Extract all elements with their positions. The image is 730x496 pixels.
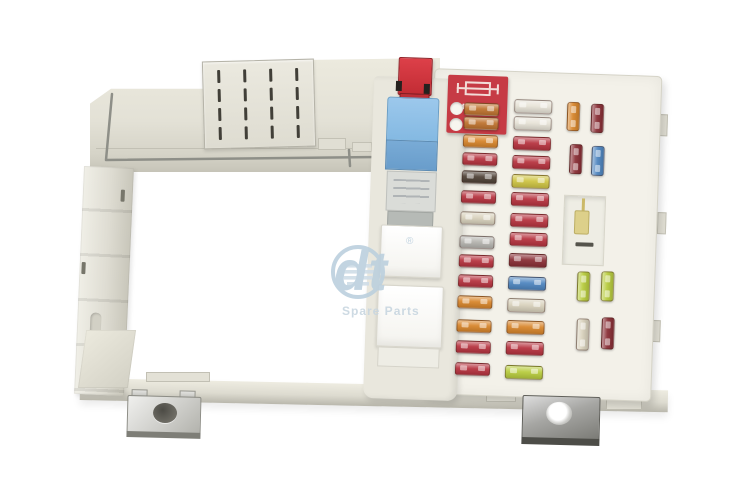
watermark-subtitle: Spare Parts [342,304,420,318]
fuse-red [512,155,550,170]
fuse-red [510,213,548,228]
fuse-red [462,152,497,166]
fuse-brown [462,170,497,184]
fuse-amber [463,116,498,130]
fuse-tan [507,298,545,313]
fuse-blue [591,146,605,176]
mount-bracket-left [126,389,205,441]
fuse-red [506,341,544,356]
fuse-red [509,232,547,247]
fuse-maroon [509,253,547,268]
fuse-red [456,340,491,354]
fuse-amber [464,102,499,116]
bracket-base [126,431,200,439]
fuse-white [514,99,552,114]
fuse-red [513,136,551,151]
fuse-maroon [569,144,583,174]
fuse-tan [576,318,590,350]
fuse-yellowgreen [576,271,590,301]
fuse-orange [457,295,492,309]
fuse-orange [463,134,498,148]
dt-logo-watermark: dt ® Spare Parts [316,212,436,328]
fuse-yellow [511,174,549,189]
fuse-red [459,254,494,268]
fuse-blue [508,276,546,291]
registered-mark: ® [406,236,414,247]
fuse-orange [456,319,491,333]
fuse-white [513,116,551,131]
fuse-yellowgreen [505,365,543,380]
fuse-yellowgreen [600,271,614,301]
dt-logo-text: dt [334,239,389,302]
fuse-orange [506,320,544,335]
fuse-red [461,190,496,204]
bracket-base [521,437,599,446]
fuse-orange [566,102,580,131]
fuse-silver [459,235,494,249]
product-photo: MAX 10A [0,0,730,496]
fuse-red [458,274,493,288]
fuse-maroon [590,104,604,133]
fuse-maroon [601,317,615,349]
fuse-red [455,362,490,376]
fuse-tan [460,211,495,225]
mount-bracket-right [519,391,604,447]
fuse-red [511,192,549,207]
